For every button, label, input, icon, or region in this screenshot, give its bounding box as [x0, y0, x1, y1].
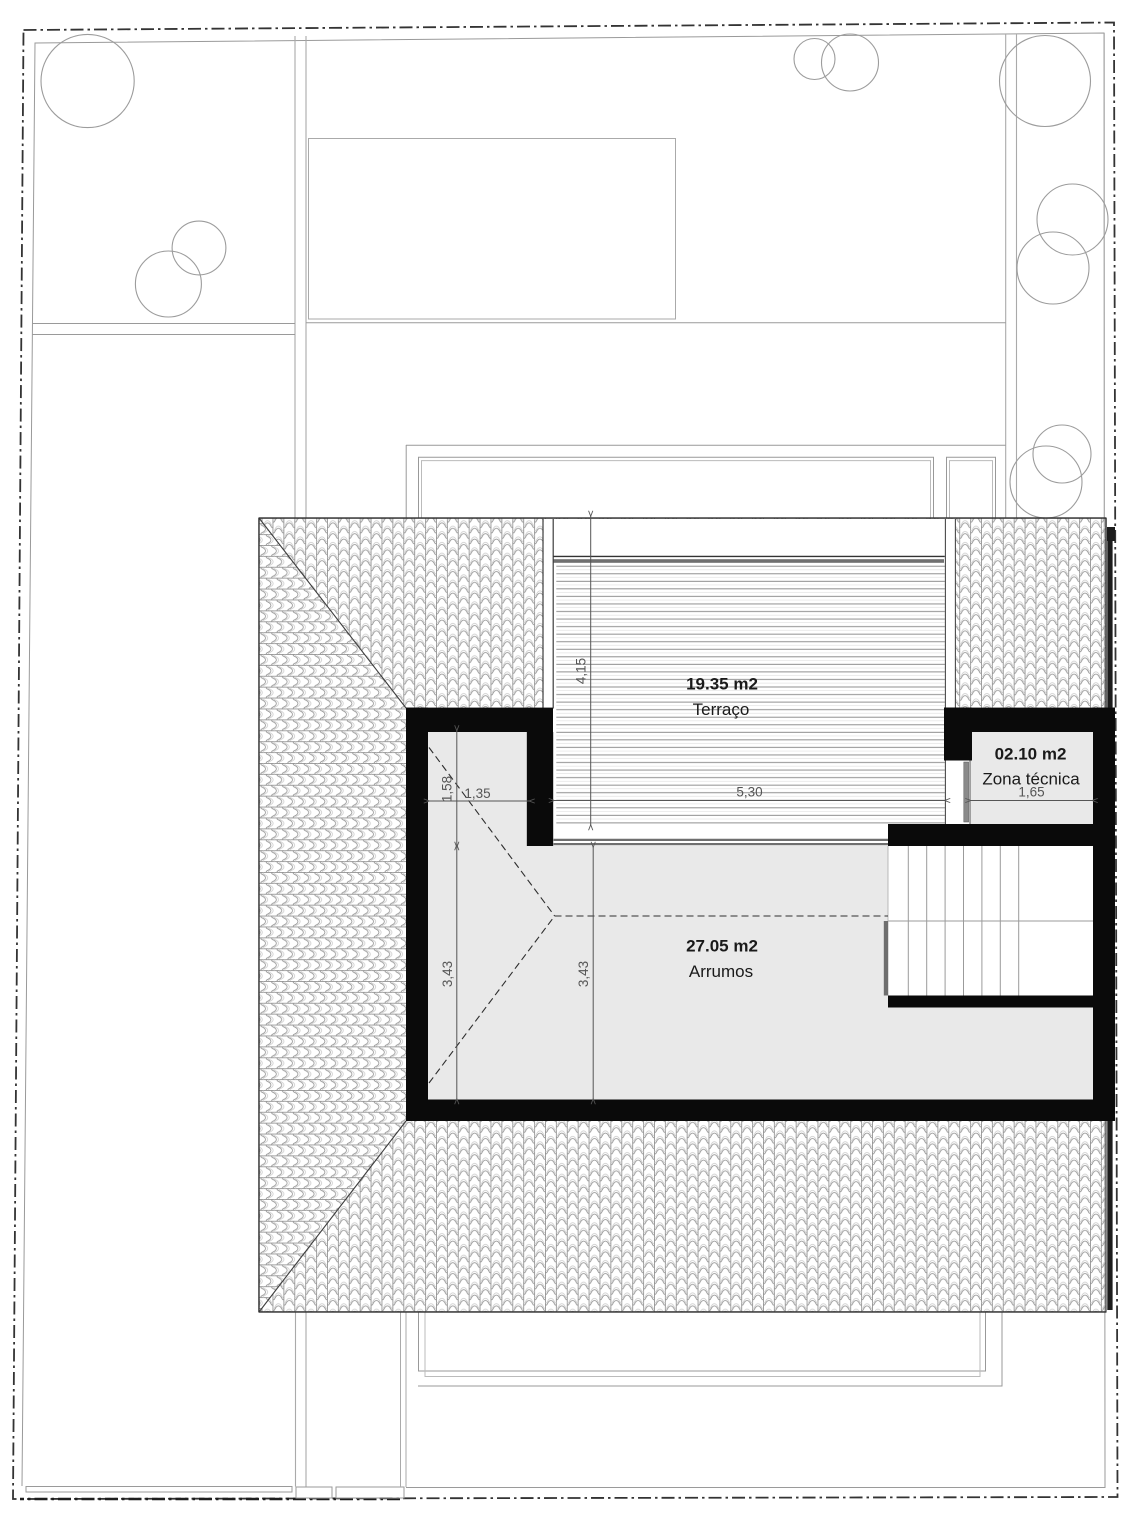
svg-text:3,43: 3,43 [440, 961, 455, 987]
svg-text:3,43: 3,43 [576, 961, 591, 987]
svg-text:4,15: 4,15 [574, 658, 589, 684]
svg-text:1,35: 1,35 [464, 786, 490, 801]
svg-text:02.10 m2: 02.10 m2 [995, 745, 1067, 764]
svg-text:27.05 m2: 27.05 m2 [686, 937, 758, 956]
svg-text:1,58: 1,58 [440, 776, 455, 802]
svg-text:Zona técnica: Zona técnica [982, 770, 1080, 789]
svg-text:Arrumos: Arrumos [689, 962, 753, 981]
svg-text:5,30: 5,30 [736, 785, 762, 800]
svg-text:Terraço: Terraço [693, 700, 750, 719]
svg-text:19.35 m2: 19.35 m2 [686, 675, 758, 694]
